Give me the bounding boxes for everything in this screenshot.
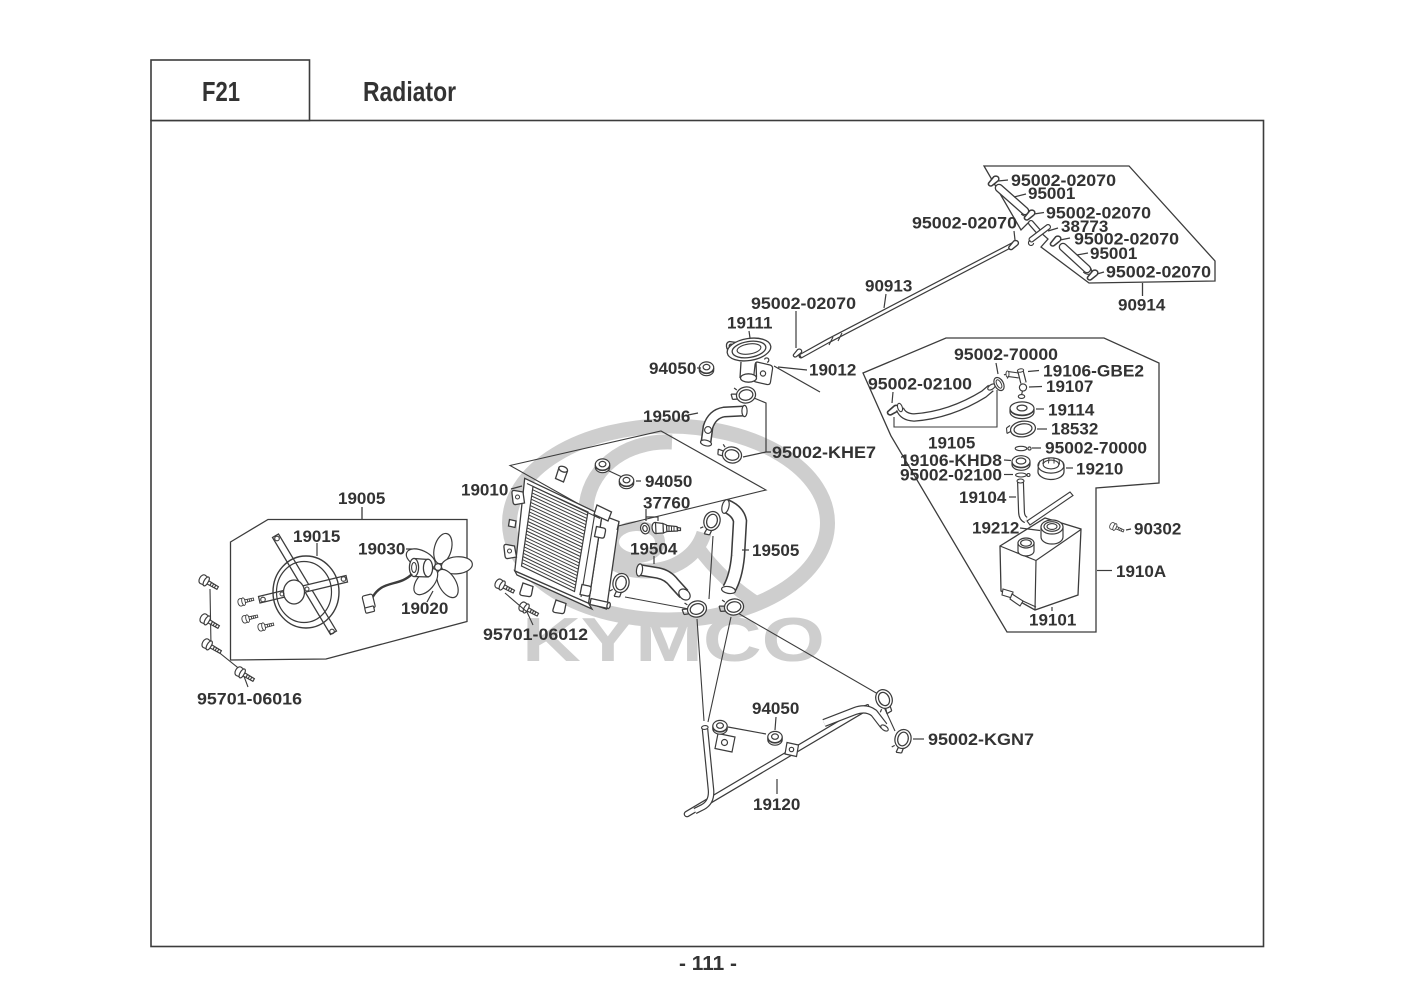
svg-text:19107: 19107 (1046, 377, 1093, 396)
svg-text:19212: 19212 (972, 519, 1019, 538)
svg-text:95002-02100: 95002-02100 (900, 466, 1002, 485)
svg-text:19120: 19120 (753, 795, 800, 814)
svg-text:19012: 19012 (809, 361, 856, 380)
svg-text:90302: 90302 (1134, 519, 1181, 538)
svg-text:19114: 19114 (1048, 401, 1095, 420)
svg-text:94050: 94050 (649, 359, 696, 378)
svg-text:95701-06016: 95701-06016 (197, 689, 302, 708)
svg-text:19210: 19210 (1076, 459, 1123, 478)
svg-text:19104: 19104 (959, 488, 1007, 507)
svg-text:1910A: 1910A (1116, 562, 1166, 581)
svg-text:19506: 19506 (643, 407, 690, 426)
svg-text:95002-KHE7: 95002-KHE7 (772, 443, 876, 462)
svg-text:95002-70000: 95002-70000 (1045, 439, 1147, 458)
svg-text:95002-02070: 95002-02070 (1106, 263, 1211, 282)
svg-text:95002-02070: 95002-02070 (912, 214, 1017, 233)
svg-text:- 111 -: - 111 - (679, 953, 737, 975)
svg-text:19005: 19005 (338, 489, 385, 508)
svg-text:90914: 90914 (1118, 296, 1166, 315)
svg-text:94050: 94050 (752, 699, 799, 718)
svg-text:Radiator: Radiator (363, 76, 456, 107)
svg-text:19015: 19015 (293, 527, 340, 546)
svg-text:19101: 19101 (1029, 610, 1076, 629)
svg-text:95002-KGN7: 95002-KGN7 (928, 730, 1034, 749)
svg-text:F21: F21 (202, 76, 240, 107)
svg-text:19030: 19030 (358, 540, 405, 559)
svg-text:95002-02100: 95002-02100 (868, 375, 972, 394)
svg-text:19111: 19111 (727, 314, 772, 333)
svg-text:95001: 95001 (1028, 184, 1075, 203)
svg-text:95701-06012: 95701-06012 (483, 625, 588, 644)
svg-text:19504: 19504 (630, 540, 678, 559)
svg-text:95002-02070: 95002-02070 (751, 294, 856, 313)
svg-text:94050: 94050 (645, 472, 692, 491)
svg-text:19105: 19105 (928, 434, 975, 453)
svg-text:95001: 95001 (1090, 244, 1137, 263)
svg-text:19505: 19505 (752, 541, 799, 560)
svg-text:19010: 19010 (461, 481, 508, 500)
svg-text:37760: 37760 (643, 494, 690, 513)
svg-text:90913: 90913 (865, 277, 912, 296)
svg-text:18532: 18532 (1051, 420, 1098, 439)
svg-text:19020: 19020 (401, 599, 448, 618)
